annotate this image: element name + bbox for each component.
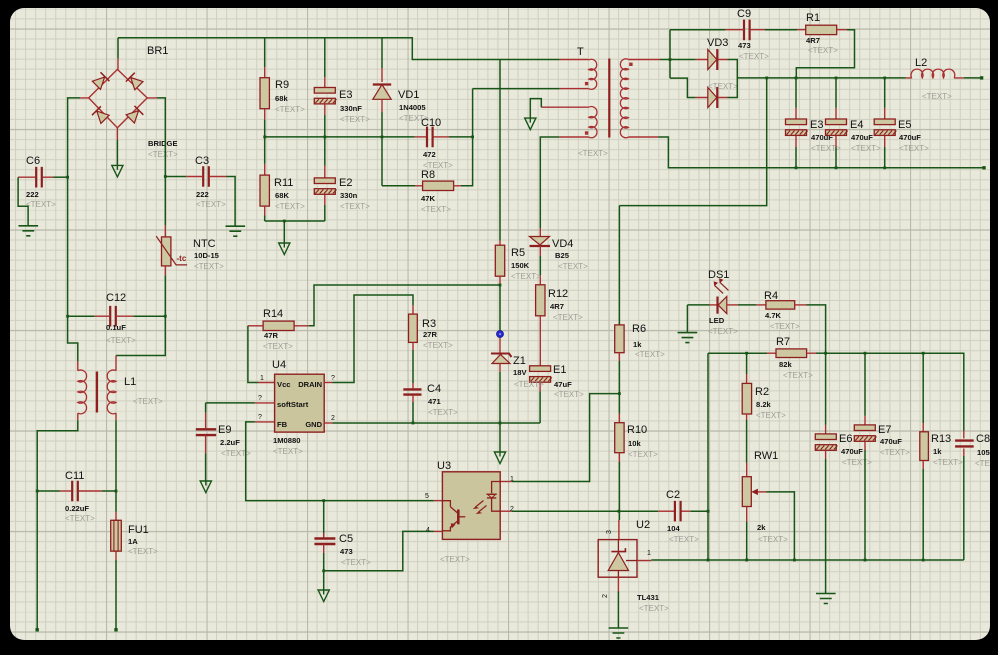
svg-text:R9: R9	[275, 79, 289, 91]
svg-text:<TEXT>: <TEXT>	[514, 380, 544, 389]
svg-text:1M0880: 1M0880	[273, 436, 300, 445]
svg-text:<TEXT>: <TEXT>	[558, 262, 588, 271]
svg-text:4R7: 4R7	[550, 302, 564, 311]
svg-text:4R7: 4R7	[806, 36, 820, 45]
svg-text:FB: FB	[277, 420, 288, 429]
svg-text:150K: 150K	[511, 261, 530, 270]
svg-text:softStart: softStart	[277, 400, 309, 409]
svg-text:E7: E7	[878, 424, 891, 436]
svg-text:R3: R3	[422, 318, 436, 330]
svg-text:-tc: -tc	[177, 254, 187, 263]
svg-text:4: 4	[426, 527, 430, 534]
svg-text:18V: 18V	[513, 368, 527, 377]
svg-text:R11: R11	[274, 177, 293, 189]
svg-text:C2: C2	[666, 489, 680, 501]
svg-text:<TEXT>: <TEXT>	[273, 447, 303, 456]
svg-text:C6: C6	[26, 155, 40, 167]
svg-text:<TEXT>: <TEXT>	[758, 535, 788, 544]
svg-text:VD1: VD1	[398, 89, 419, 101]
svg-text:VD4: VD4	[552, 238, 573, 250]
svg-text:1: 1	[647, 550, 651, 557]
svg-text:<TEXT>: <TEXT>	[275, 105, 305, 114]
svg-text:R10: R10	[627, 424, 647, 436]
svg-text:<TEXT>: <TEXT>	[739, 52, 769, 61]
svg-text:8.2k: 8.2k	[756, 400, 772, 409]
svg-text:47uF: 47uF	[554, 380, 572, 389]
svg-text:<TEXT>: <TEXT>	[553, 313, 583, 322]
svg-text:104: 104	[667, 524, 680, 533]
svg-text:1: 1	[510, 476, 514, 483]
svg-text:<TEXT>: <TEXT>	[196, 200, 226, 209]
svg-text:BR1: BR1	[147, 45, 168, 57]
svg-text:222: 222	[26, 190, 39, 199]
svg-text:T: T	[577, 46, 584, 58]
svg-text:DRAIN: DRAIN	[298, 380, 322, 389]
svg-text:2.2uF: 2.2uF	[220, 438, 240, 447]
svg-text:47K: 47K	[421, 194, 435, 203]
svg-text:3: 3	[606, 530, 613, 534]
svg-text:R6: R6	[632, 323, 646, 335]
svg-text:<TEXT>: <TEXT>	[275, 202, 305, 211]
svg-text:0.22uF: 0.22uF	[65, 504, 89, 513]
svg-text:<TEXT>: <TEXT>	[106, 336, 136, 345]
svg-text:330n: 330n	[340, 191, 358, 200]
svg-text:TL431: TL431	[637, 593, 660, 602]
svg-text:E2: E2	[339, 177, 352, 189]
svg-text:U2: U2	[636, 519, 650, 531]
svg-text:<TEXT>: <TEXT>	[635, 350, 665, 359]
svg-text:<TEXT>: <TEXT>	[669, 535, 699, 544]
svg-text:2: 2	[331, 415, 335, 422]
svg-text:R5: R5	[511, 247, 525, 259]
svg-text:<TEXT>: <TEXT>	[128, 547, 158, 556]
svg-text:VD3: VD3	[707, 37, 728, 49]
svg-text:R7: R7	[776, 336, 790, 348]
svg-text:471: 471	[428, 397, 441, 406]
svg-text:NTC: NTC	[193, 238, 216, 250]
svg-text:C12: C12	[106, 292, 126, 304]
svg-text:10k: 10k	[628, 439, 641, 448]
svg-text:<TEXT>: <TEXT>	[554, 390, 584, 399]
svg-text:222: 222	[196, 190, 209, 199]
svg-text:E5: E5	[898, 119, 911, 131]
svg-text:?: ?	[258, 414, 262, 421]
svg-text:C5: C5	[339, 533, 353, 545]
svg-text:<TEXT>: <TEXT>	[421, 205, 451, 214]
svg-text:BRIDGE: BRIDGE	[148, 139, 178, 148]
svg-text:B25: B25	[555, 251, 570, 260]
svg-text:0.1uF: 0.1uF	[106, 323, 126, 332]
svg-text:473: 473	[738, 41, 751, 50]
svg-text:27R: 27R	[423, 330, 437, 339]
svg-text:2: 2	[602, 594, 609, 598]
svg-text:470uF: 470uF	[880, 437, 902, 446]
svg-text:R8: R8	[421, 169, 435, 181]
svg-text:<TEXT>: <TEXT>	[423, 341, 453, 350]
svg-text:<TEXT>: <TEXT>	[899, 144, 929, 153]
svg-text:R12: R12	[548, 288, 568, 300]
svg-text:<TEXT>: <TEXT>	[26, 200, 56, 209]
svg-text:473: 473	[340, 547, 353, 556]
svg-text:C4: C4	[427, 383, 441, 395]
svg-text:<TEXT>: <TEXT>	[194, 262, 224, 271]
svg-text:<TEXT>: <TEXT>	[65, 514, 95, 523]
svg-text:<TEXT>: <TEXT>	[842, 458, 872, 467]
svg-text:<TEXT>: <TEXT>	[341, 558, 371, 567]
svg-text:<TEXT>: <TEXT>	[808, 46, 838, 55]
svg-text:<TEXT>: <TEXT>	[851, 144, 881, 153]
svg-text:<TEXT>: <TEXT>	[708, 82, 738, 91]
svg-text:1: 1	[260, 375, 264, 382]
svg-text:<TEXT>: <TEXT>	[628, 450, 658, 459]
svg-text:<TEXT>: <TEXT>	[578, 149, 608, 158]
svg-text:C9: C9	[737, 8, 751, 20]
svg-text:<TEXT>: <TEXT>	[340, 202, 370, 211]
svg-text:C3: C3	[195, 155, 209, 167]
svg-text:47R: 47R	[264, 331, 278, 340]
svg-text:<TEXT>: <TEXT>	[511, 272, 541, 281]
svg-text:U4: U4	[272, 359, 286, 371]
svg-text:<TEXT>: <TEXT>	[756, 411, 786, 420]
svg-text:E1: E1	[553, 364, 566, 376]
svg-text:<TEXT>: <TEXT>	[922, 92, 952, 101]
svg-text:<TEXT>: <TEXT>	[263, 342, 293, 351]
svg-text:330nF: 330nF	[340, 104, 362, 113]
svg-text:5: 5	[425, 493, 429, 500]
svg-text:<TEXT>: <TEXT>	[340, 115, 370, 124]
svg-text:E9: E9	[218, 424, 231, 436]
svg-text:2k: 2k	[757, 523, 766, 532]
svg-text:C11: C11	[65, 470, 84, 482]
svg-text:E6: E6	[839, 433, 852, 445]
svg-text:<TEXT>: <TEXT>	[221, 449, 251, 458]
svg-text:<TEXT>: <TEXT>	[148, 150, 178, 159]
svg-text:<TEXT>: <TEXT>	[133, 397, 163, 406]
svg-text:R4: R4	[764, 290, 778, 302]
svg-text:68K: 68K	[275, 191, 289, 200]
svg-text:<TEXT>: <TEXT>	[708, 327, 738, 336]
svg-text:1k: 1k	[933, 447, 942, 456]
svg-text:470uF: 470uF	[851, 133, 873, 142]
svg-text:<TEXT>: <TEXT>	[440, 555, 470, 564]
svg-text:<TEXT>: <TEXT>	[880, 448, 910, 457]
svg-text:?: ?	[331, 375, 335, 382]
svg-text:4.7K: 4.7K	[765, 311, 782, 320]
svg-text:E4: E4	[850, 119, 863, 131]
svg-text:472: 472	[423, 150, 436, 159]
svg-text:L2: L2	[915, 57, 927, 69]
svg-text:R13: R13	[931, 433, 951, 445]
svg-text:<TEXT>: <TEXT>	[770, 322, 800, 331]
svg-text:R14: R14	[263, 308, 283, 320]
svg-text:1k: 1k	[633, 340, 642, 349]
svg-text:R1: R1	[806, 12, 820, 24]
svg-text:2: 2	[510, 506, 514, 513]
svg-text:FU1: FU1	[128, 524, 149, 536]
svg-text:E3: E3	[810, 119, 823, 131]
svg-text:470uF: 470uF	[899, 133, 921, 142]
svg-text:LED: LED	[709, 316, 725, 325]
svg-text:RW1: RW1	[754, 450, 778, 462]
svg-text:105: 105	[977, 448, 990, 457]
svg-text:Z1: Z1	[513, 355, 526, 367]
svg-text:Vcc: Vcc	[277, 380, 291, 389]
svg-text:GND: GND	[305, 420, 322, 429]
svg-text:R2: R2	[755, 386, 769, 398]
svg-text:DS1: DS1	[708, 269, 729, 281]
svg-text:E3: E3	[339, 89, 352, 101]
svg-text:C10: C10	[421, 117, 441, 129]
svg-text:<TEXT>: <TEXT>	[428, 408, 458, 417]
svg-text:?: ?	[258, 395, 262, 402]
svg-text:68k: 68k	[275, 94, 288, 103]
svg-text:1A: 1A	[128, 537, 138, 546]
svg-text:C8: C8	[976, 433, 990, 445]
svg-text:82k: 82k	[779, 360, 792, 369]
svg-text:1N4005: 1N4005	[399, 103, 426, 112]
svg-text:470uF: 470uF	[841, 447, 863, 456]
svg-text:L1: L1	[124, 376, 136, 388]
svg-text:<TEXT>: <TEXT>	[783, 371, 813, 380]
svg-text:U3: U3	[437, 460, 451, 472]
svg-text:<TEXT>: <TEXT>	[933, 458, 963, 467]
svg-text:<TEXT>: <TEXT>	[639, 604, 669, 613]
svg-text:10D-15: 10D-15	[194, 251, 220, 260]
